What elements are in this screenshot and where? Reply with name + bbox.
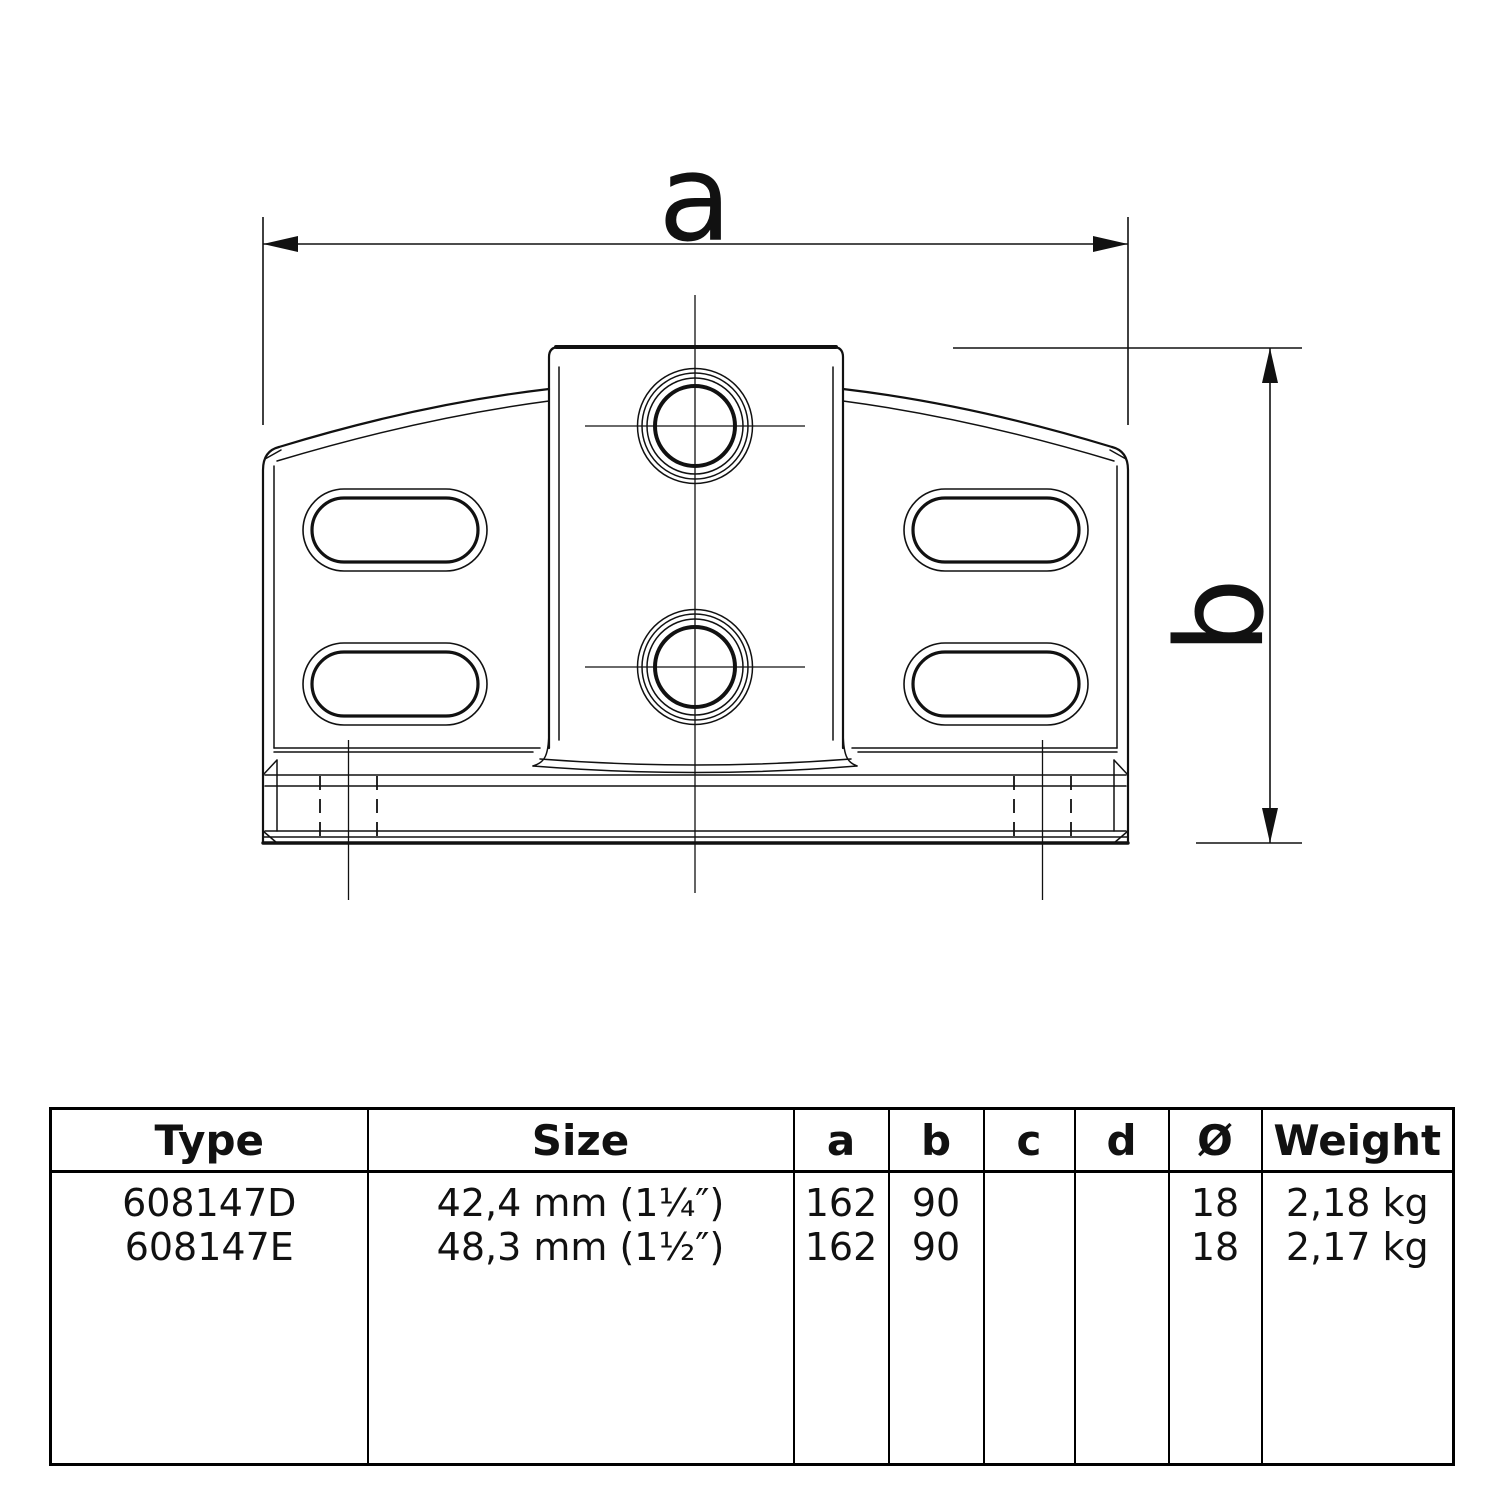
type-value: 608147E <box>52 1225 367 1269</box>
cell-size: 42,4 mm (1¼″) 48,3 mm (1½″) <box>368 1172 794 1465</box>
base-chamfer <box>263 760 277 775</box>
col-header-b: b <box>889 1109 984 1172</box>
dim-a-arrow-right <box>1093 236 1128 252</box>
dimension-a-label: a <box>658 130 732 269</box>
weight-value: 2,17 kg <box>1263 1225 1453 1269</box>
right-wing-top-edge <box>843 389 1112 447</box>
cell-a: 162 162 <box>794 1172 889 1465</box>
left-wing-top-inner-line <box>277 401 549 461</box>
left-top-slot-inner <box>312 498 478 562</box>
dim-b-arrow-bottom <box>1262 808 1278 843</box>
a-value: 162 <box>795 1225 888 1269</box>
b-value: 90 <box>890 1225 983 1269</box>
base-chamfer <box>1114 760 1128 775</box>
spec-table-body-row: 608147D 608147E 42,4 mm (1¼″) 48,3 mm (1… <box>51 1172 1454 1465</box>
cell-b: 90 90 <box>889 1172 984 1465</box>
col-header-a: a <box>794 1109 889 1172</box>
spec-table: Type Size a b c d Ø Weight 608147D 60814… <box>49 1107 1455 1466</box>
col-header-c: c <box>984 1109 1075 1172</box>
cell-d <box>1075 1172 1169 1465</box>
type-value: 608147D <box>52 1181 367 1225</box>
cell-diameter: 18 18 <box>1169 1172 1262 1465</box>
central-body-outline <box>549 347 843 748</box>
col-header-d: d <box>1075 1109 1169 1172</box>
a-value: 162 <box>795 1181 888 1225</box>
cell-c <box>984 1172 1075 1465</box>
bell-right-flare <box>843 728 857 766</box>
cell-weight: 2,18 kg 2,17 kg <box>1262 1172 1454 1465</box>
right-bottom-slot-inner <box>913 652 1079 716</box>
bell-left-flare <box>533 728 549 766</box>
right-top-slot-inner <box>913 498 1079 562</box>
left-wing-top-edge <box>279 389 549 447</box>
weight-value: 2,18 kg <box>1263 1181 1453 1225</box>
technical-drawing-page: a b Type Size a b c d <box>0 0 1501 1501</box>
size-value: 42,4 mm (1¼″) <box>369 1181 793 1225</box>
cell-type: 608147D 608147E <box>51 1172 368 1465</box>
col-header-type: Type <box>51 1109 368 1172</box>
diameter-value: 18 <box>1170 1181 1261 1225</box>
left-bottom-slot-inner <box>312 652 478 716</box>
col-header-size: Size <box>368 1109 794 1172</box>
dim-a-arrow-left <box>263 236 298 252</box>
right-wing-top-inner-line <box>843 401 1114 461</box>
dimension-b-label: b <box>1152 578 1291 654</box>
col-header-diameter: Ø <box>1169 1109 1262 1172</box>
dim-b-arrow-top <box>1262 348 1278 383</box>
b-value: 90 <box>890 1181 983 1225</box>
col-header-weight: Weight <box>1262 1109 1454 1172</box>
spec-table-header-row: Type Size a b c d Ø Weight <box>51 1109 1454 1172</box>
size-value: 48,3 mm (1½″) <box>369 1225 793 1269</box>
diameter-value: 18 <box>1170 1225 1261 1269</box>
